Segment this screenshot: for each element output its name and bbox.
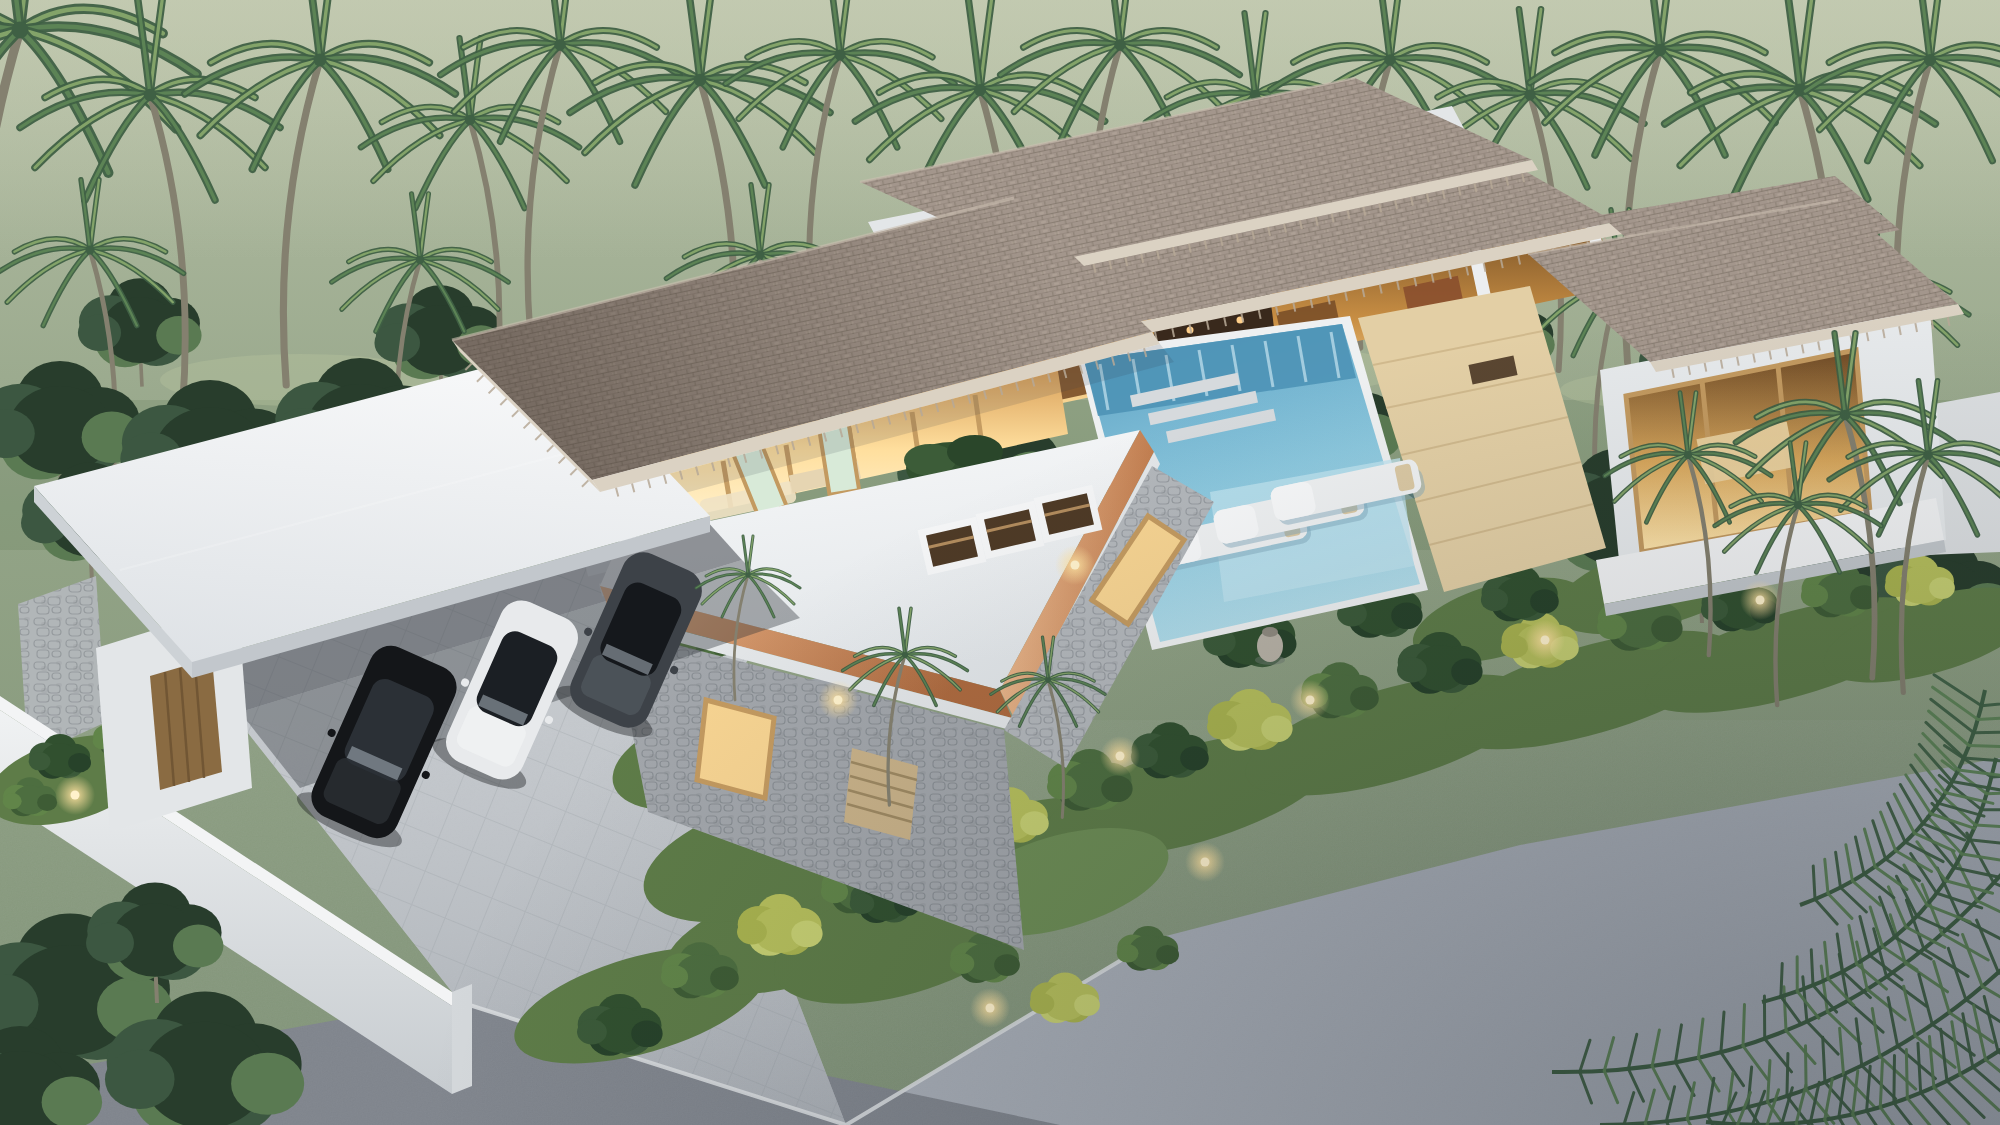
render-canvas — [0, 0, 2000, 1125]
villa-aerial-render — [0, 0, 2000, 1125]
vignette — [0, 0, 2000, 1125]
